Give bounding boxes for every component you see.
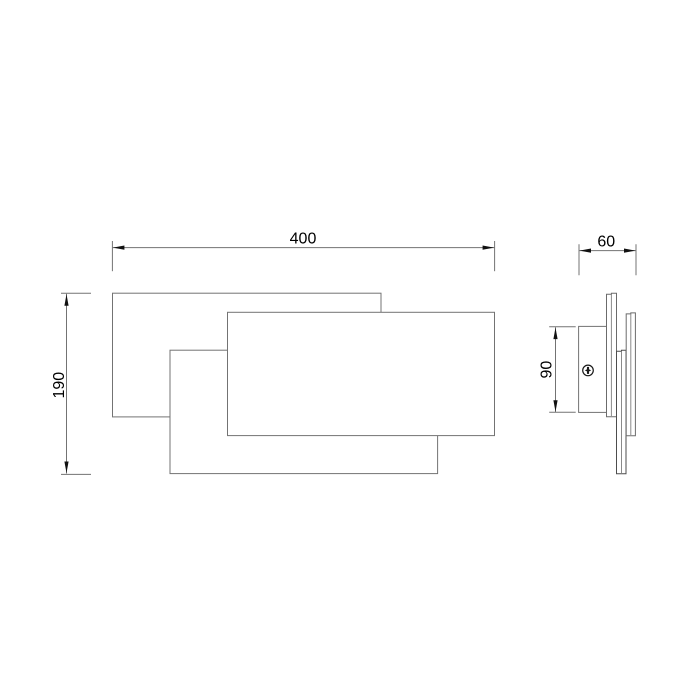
svg-text:400: 400 (290, 231, 317, 248)
svg-text:60: 60 (597, 234, 615, 251)
svg-text:190: 190 (51, 372, 68, 399)
svg-text:90: 90 (539, 361, 556, 379)
